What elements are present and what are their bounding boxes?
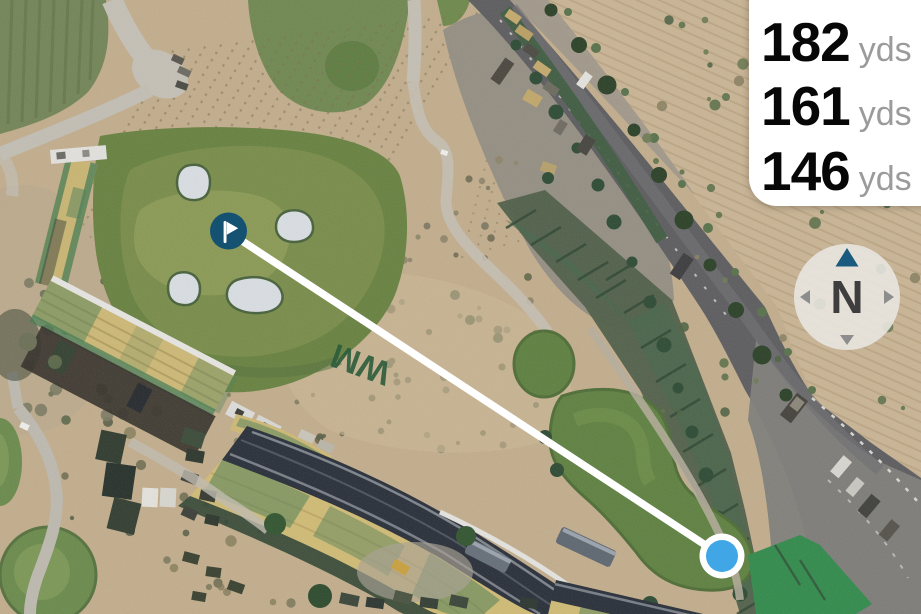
svg-text:N: N xyxy=(830,271,863,323)
